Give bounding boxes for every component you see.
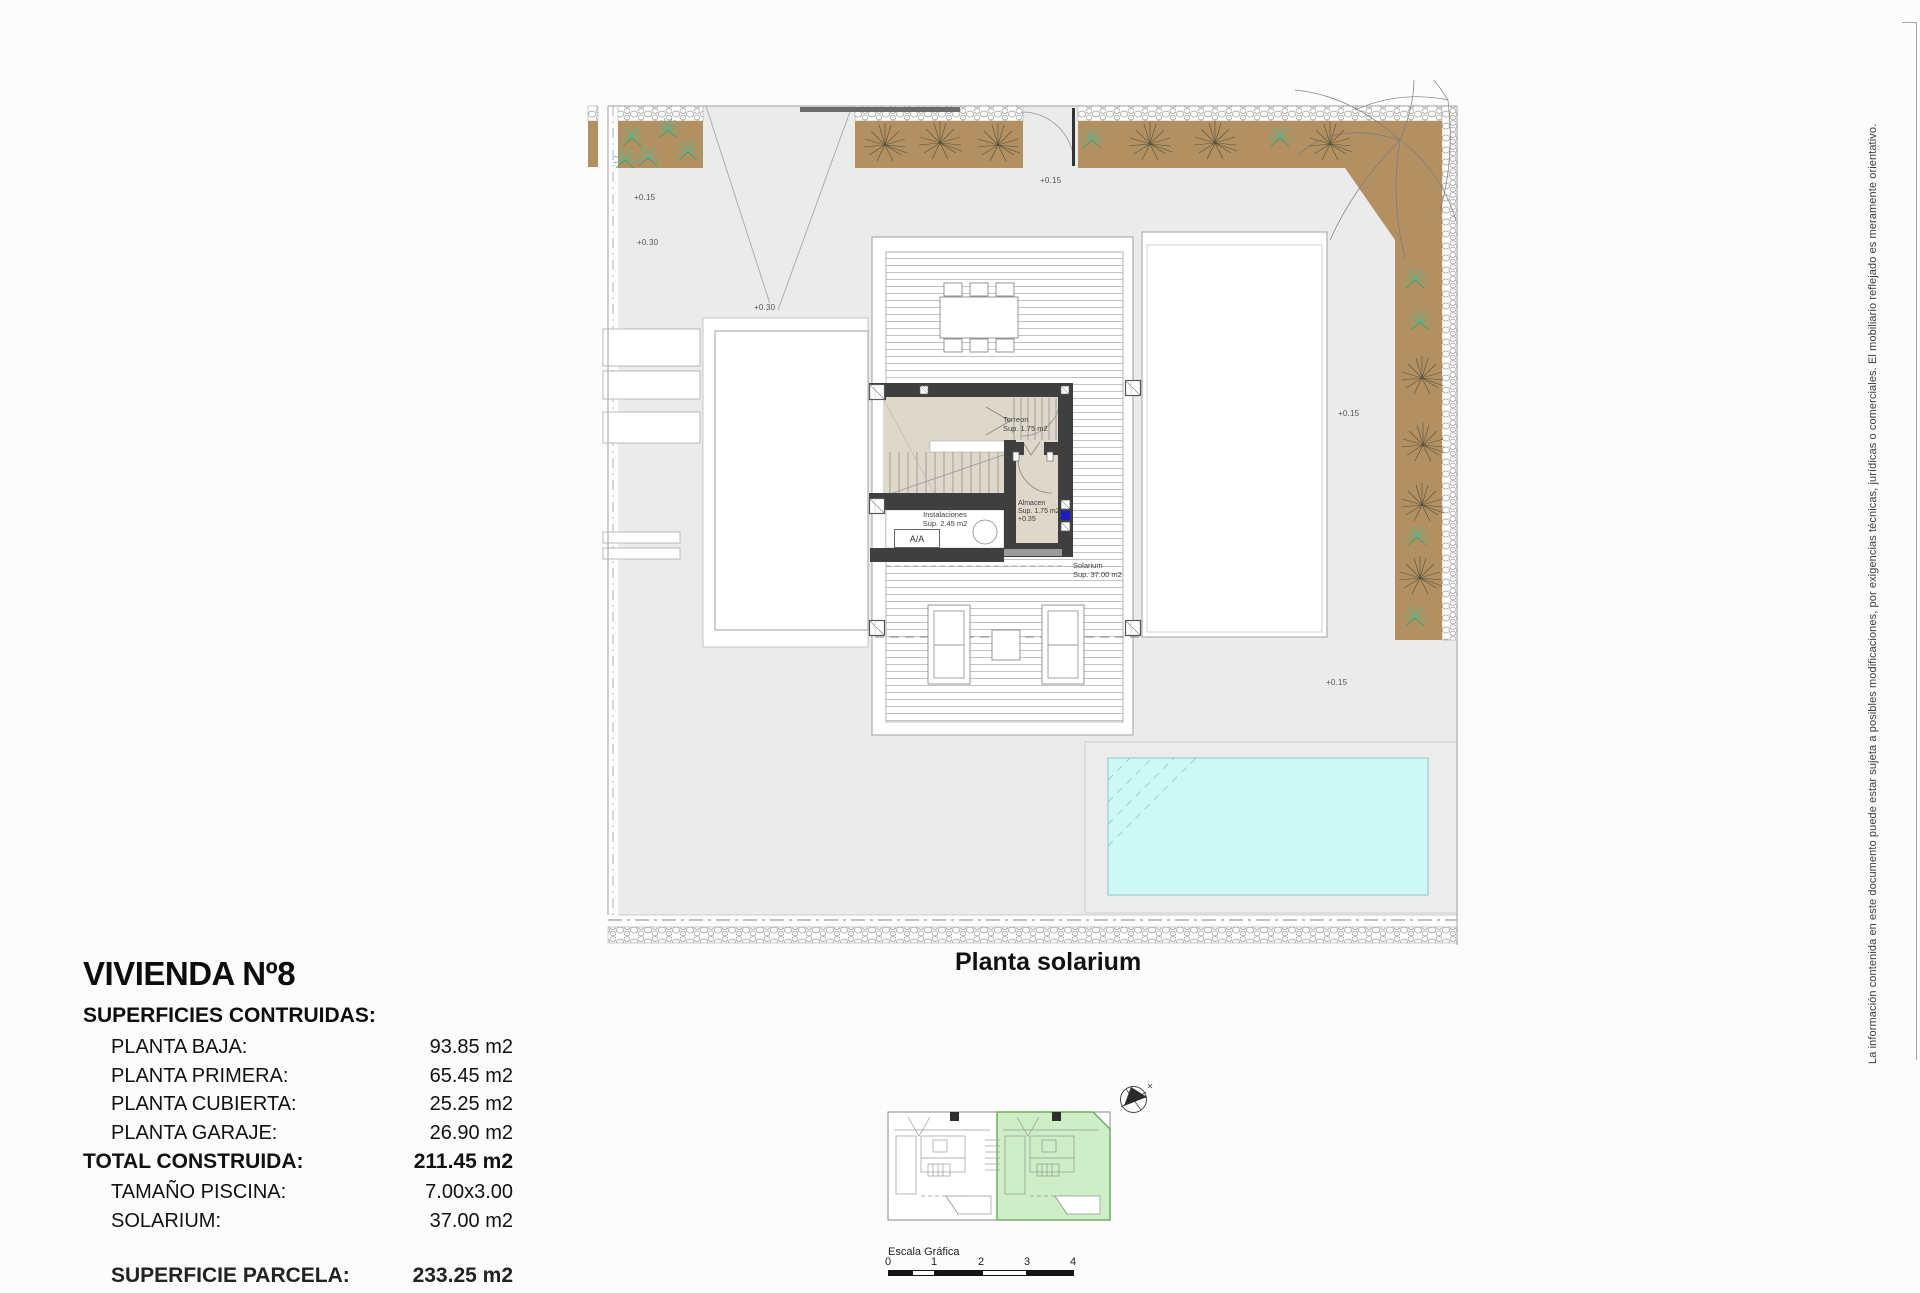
elevation-mark: +0.15	[1326, 678, 1347, 687]
key-plan	[875, 1075, 1175, 1225]
swimming-pool	[1108, 758, 1428, 895]
room-label-almacen: Almacen Sup. 1.75 m2 +0.35	[1018, 500, 1060, 523]
scale-tick: 2	[978, 1256, 984, 1268]
scale-tick: 1	[931, 1256, 937, 1268]
dining-set	[940, 283, 1018, 352]
aa-unit-label: A/A	[910, 534, 925, 544]
elevation-mark: +0.15	[634, 193, 655, 202]
table-row: PLANTA CUBIERTA: 25.25 m2	[83, 1093, 513, 1122]
north-arrow-icon	[1121, 1084, 1153, 1113]
table-row-parcela-clipped: SUPERFICIE PARCELA: 233.25 m2	[83, 1264, 513, 1293]
table-row: PLANTA PRIMERA: 65.45 m2	[83, 1065, 513, 1094]
room-label-solarium: Solarium Sup. 37.00 m2	[1073, 562, 1122, 579]
scale-tick: 4	[1070, 1256, 1076, 1268]
table-row: PLANTA GARAJE: 26.90 m2	[83, 1122, 513, 1151]
blue-window-symbol	[1061, 511, 1070, 520]
table-row-total: TOTAL CONSTRUIDA: 211.45 m2	[83, 1150, 513, 1181]
sheet-frame-line	[1916, 22, 1917, 1060]
scale-tick: 3	[1024, 1256, 1030, 1268]
dining-table	[940, 297, 1018, 338]
pergola-beam	[800, 107, 960, 112]
lower-roof-right	[1142, 232, 1327, 637]
plan-caption: Planta solarium	[955, 948, 1141, 977]
title-block: VIVIENDA Nº8 SUPERFICIES CONTRUIDAS: PLA…	[83, 955, 513, 1238]
room-label-instalaciones: Instalaciones Sup. 2.45 m2	[890, 511, 1000, 528]
table-row: PLANTA BAJA: 93.85 m2	[83, 1036, 513, 1065]
legal-disclaimer: La información contenida en este documen…	[1867, 72, 1891, 1064]
sheet-frame-tick	[1902, 22, 1917, 23]
room-label-torreon: Torreon Sup. 1.75 m2	[1003, 416, 1048, 433]
elevation-mark: +0.15	[1040, 176, 1061, 185]
scale-tick: 0	[885, 1256, 891, 1268]
side-table	[992, 630, 1020, 660]
scale-bar-label: Escala Gráfica	[888, 1246, 960, 1258]
dwelling-title: VIVIENDA Nº8	[83, 955, 513, 993]
elevation-mark: +0.30	[752, 303, 777, 312]
surfaces-subtitle: SUPERFICIES CONTRUIDAS:	[83, 1004, 513, 1028]
surfaces-table: PLANTA BAJA: 93.85 m2 PLANTA PRIMERA: 65…	[83, 1036, 513, 1238]
elevation-mark: +0.30	[637, 238, 658, 247]
lower-roof-left	[715, 331, 868, 630]
elevation-mark: +0.15	[1338, 409, 1359, 418]
table-row: TAMAÑO PISCINA: 7.00x3.00	[83, 1181, 513, 1210]
table-row: SOLARIUM: 37.00 m2	[83, 1210, 513, 1239]
window-symbols	[1061, 500, 1070, 531]
aa-unit-box: A/A	[894, 529, 940, 548]
